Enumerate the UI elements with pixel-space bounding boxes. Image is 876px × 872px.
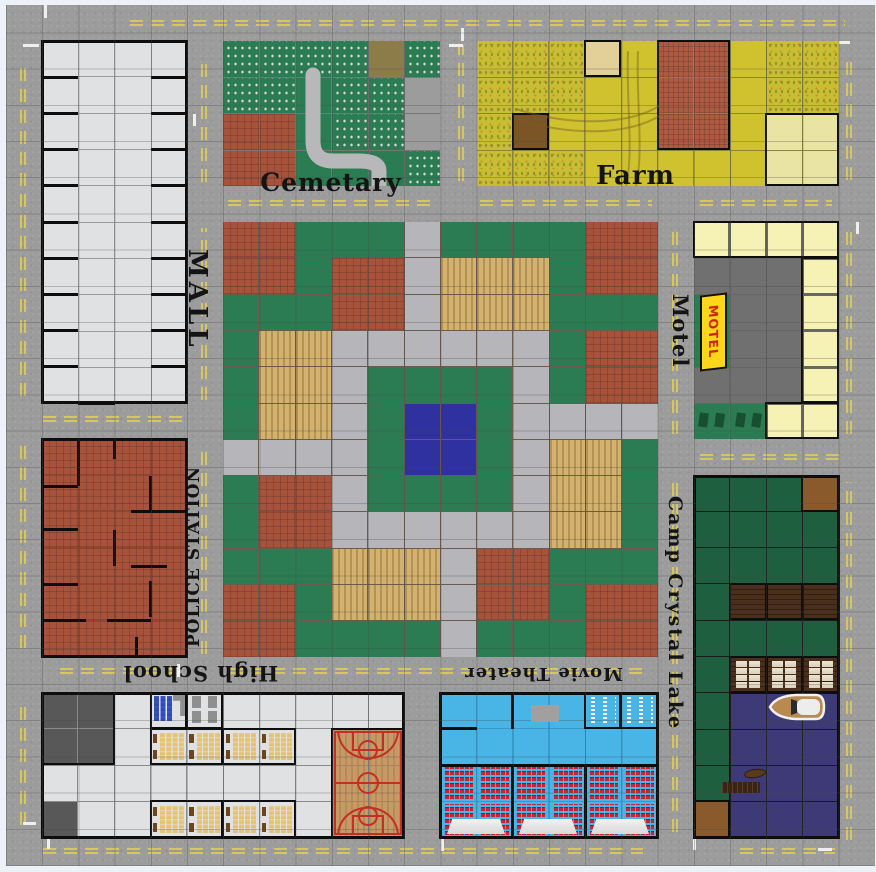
classroom-tile[interactable] xyxy=(187,802,222,837)
classroom-tile[interactable] xyxy=(151,802,186,837)
cabin-tile[interactable] xyxy=(730,584,765,619)
grass-tile[interactable] xyxy=(477,404,512,439)
brick-floor-tile[interactable] xyxy=(42,585,77,620)
lake-water-tile[interactable] xyxy=(767,802,802,837)
floor-tile[interactable] xyxy=(152,41,187,76)
grass-tile[interactable] xyxy=(586,549,621,584)
lobby-floor-tile[interactable] xyxy=(440,729,475,764)
grass-tile[interactable] xyxy=(550,367,585,402)
brick-plaza-tile[interactable] xyxy=(223,222,258,257)
path-tile[interactable] xyxy=(405,222,440,257)
path-tile[interactable] xyxy=(296,440,331,475)
parking-lot-tile[interactable] xyxy=(767,331,802,366)
grass-tile[interactable] xyxy=(513,222,548,257)
forest-tile[interactable] xyxy=(767,476,802,511)
path-tile[interactable] xyxy=(622,404,657,439)
floor-tile[interactable] xyxy=(79,295,114,330)
grass-tile[interactable] xyxy=(477,476,512,511)
floor-tile[interactable] xyxy=(79,186,114,221)
brick-plaza-tile[interactable] xyxy=(586,585,621,620)
parking-lot-tile[interactable] xyxy=(730,368,765,403)
garden-plot-tile[interactable] xyxy=(368,549,403,584)
dark-room-tile[interactable] xyxy=(42,693,77,728)
grass-tile[interactable] xyxy=(550,331,585,366)
brick-plaza-tile[interactable] xyxy=(622,621,657,656)
brick-floor-tile[interactable] xyxy=(42,548,77,583)
lobby-floor-tile[interactable] xyxy=(622,729,657,764)
concession-stand-tile[interactable] xyxy=(586,693,621,728)
parking-lot-tile[interactable] xyxy=(730,295,765,330)
path-tile[interactable] xyxy=(513,331,548,366)
brick-plaza-tile[interactable] xyxy=(259,476,294,511)
brick-plaza-tile[interactable] xyxy=(586,367,621,402)
forest-tile[interactable] xyxy=(694,584,729,619)
classroom-tile[interactable] xyxy=(224,802,259,837)
grass-tile[interactable] xyxy=(332,222,367,257)
motel-room-tile[interactable] xyxy=(803,259,838,294)
floor-tile[interactable] xyxy=(152,368,187,403)
brick-floor-tile[interactable] xyxy=(115,476,150,511)
path-tile[interactable] xyxy=(441,549,476,584)
parking-lot-tile[interactable] xyxy=(694,259,729,294)
theater-seats-tile[interactable] xyxy=(477,766,512,801)
floor-tile[interactable] xyxy=(42,766,77,801)
floor-tile[interactable] xyxy=(42,223,77,258)
path-tile[interactable] xyxy=(441,512,476,547)
garden-plot-tile[interactable] xyxy=(259,331,294,366)
grass-tile[interactable] xyxy=(441,222,476,257)
grass-tile[interactable] xyxy=(477,222,512,257)
motel-room-tile[interactable] xyxy=(730,222,765,257)
path-tile[interactable] xyxy=(405,512,440,547)
theater-seats-tile[interactable] xyxy=(586,766,621,801)
brick-plaza-tile[interactable] xyxy=(586,222,621,257)
brick-floor-tile[interactable] xyxy=(79,476,114,511)
restroom-tile[interactable] xyxy=(187,693,222,728)
garden-plot-tile[interactable] xyxy=(586,440,621,475)
path-tile[interactable] xyxy=(513,404,548,439)
floor-tile[interactable] xyxy=(115,368,150,403)
lobby-floor-tile[interactable] xyxy=(586,729,621,764)
floor-tile[interactable] xyxy=(79,150,114,185)
floor-tile[interactable] xyxy=(296,729,331,764)
floor-tile[interactable] xyxy=(79,41,114,76)
brick-floor-tile[interactable] xyxy=(152,512,187,547)
forest-tile[interactable] xyxy=(767,621,802,656)
garden-plot-tile[interactable] xyxy=(586,476,621,511)
bunk-cabin-tile[interactable] xyxy=(803,657,838,692)
garden-plot-tile[interactable] xyxy=(550,512,585,547)
grass-tile[interactable] xyxy=(223,512,258,547)
grass-tile[interactable] xyxy=(223,331,258,366)
motel-room-tile[interactable] xyxy=(767,404,802,439)
grass-tile[interactable] xyxy=(368,367,403,402)
path-tile[interactable] xyxy=(259,440,294,475)
parking-lot-tile[interactable] xyxy=(767,259,802,294)
dark-room-tile[interactable] xyxy=(42,802,77,837)
brick-floor-tile[interactable] xyxy=(79,548,114,583)
floor-tile[interactable] xyxy=(115,223,150,258)
path-tile[interactable] xyxy=(441,621,476,656)
grass-tile[interactable] xyxy=(550,585,585,620)
floor-tile[interactable] xyxy=(79,368,114,403)
forest-tile[interactable] xyxy=(694,693,729,728)
floor-tile[interactable] xyxy=(42,41,77,76)
lake-water-tile[interactable] xyxy=(730,802,765,837)
garden-plot-tile[interactable] xyxy=(296,367,331,402)
motel-room-tile[interactable] xyxy=(803,368,838,403)
theater-seats-tile[interactable] xyxy=(513,766,548,801)
parked-cars-lawn-tile[interactable] xyxy=(730,404,765,439)
brick-plaza-tile[interactable] xyxy=(477,585,512,620)
bunk-cabin-tile[interactable] xyxy=(767,657,802,692)
grass-tile[interactable] xyxy=(368,621,403,656)
camp-ground-tile[interactable] xyxy=(694,802,729,837)
floor-tile[interactable] xyxy=(115,259,150,294)
grass-tile[interactable] xyxy=(405,367,440,402)
classroom-tile[interactable] xyxy=(260,802,295,837)
floor-tile[interactable] xyxy=(78,766,113,801)
forest-tile[interactable] xyxy=(694,512,729,547)
brick-floor-tile[interactable] xyxy=(42,439,77,474)
path-tile[interactable] xyxy=(405,295,440,330)
floor-tile[interactable] xyxy=(42,295,77,330)
dark-room-tile[interactable] xyxy=(78,693,113,728)
grass-tile[interactable] xyxy=(223,367,258,402)
parking-lot-tile[interactable] xyxy=(767,295,802,330)
brick-plaza-tile[interactable] xyxy=(223,585,258,620)
floor-tile[interactable] xyxy=(78,802,113,837)
floor-tile[interactable] xyxy=(152,186,187,221)
forest-tile[interactable] xyxy=(803,621,838,656)
grass-tile[interactable] xyxy=(223,476,258,511)
grass-tile[interactable] xyxy=(296,222,331,257)
theater-seats-tile[interactable] xyxy=(622,766,657,801)
lobby-floor-tile[interactable] xyxy=(477,693,512,728)
brick-floor-tile[interactable] xyxy=(79,621,114,656)
grass-tile[interactable] xyxy=(259,549,294,584)
grass-tile[interactable] xyxy=(622,549,657,584)
brick-plaza-tile[interactable] xyxy=(586,621,621,656)
lake-water-tile[interactable] xyxy=(730,730,765,765)
dark-room-tile[interactable] xyxy=(78,729,113,764)
pool-tile[interactable] xyxy=(441,404,476,439)
grass-tile[interactable] xyxy=(441,476,476,511)
concession-stand-tile[interactable] xyxy=(622,693,657,728)
lobby-floor-tile[interactable] xyxy=(440,693,475,728)
path-tile[interactable] xyxy=(332,476,367,511)
path-tile[interactable] xyxy=(332,512,367,547)
floor-tile[interactable] xyxy=(187,766,222,801)
brick-plaza-tile[interactable] xyxy=(296,476,331,511)
floor-tile[interactable] xyxy=(79,114,114,149)
floor-tile[interactable] xyxy=(42,186,77,221)
forest-tile[interactable] xyxy=(730,548,765,583)
garden-plot-tile[interactable] xyxy=(513,295,548,330)
grass-tile[interactable] xyxy=(223,549,258,584)
path-tile[interactable] xyxy=(586,404,621,439)
grass-tile[interactable] xyxy=(622,440,657,475)
floor-tile[interactable] xyxy=(115,41,150,76)
grass-tile[interactable] xyxy=(550,621,585,656)
parking-lot-tile[interactable] xyxy=(730,259,765,294)
brick-plaza-tile[interactable] xyxy=(368,258,403,293)
lake-water-tile[interactable] xyxy=(803,766,838,801)
grass-tile[interactable] xyxy=(550,222,585,257)
classroom-tile[interactable] xyxy=(151,729,186,764)
lake-water-tile[interactable] xyxy=(803,802,838,837)
path-tile[interactable] xyxy=(441,585,476,620)
classroom-tile[interactable] xyxy=(187,729,222,764)
brick-plaza-tile[interactable] xyxy=(259,585,294,620)
brick-floor-tile[interactable] xyxy=(152,439,187,474)
path-tile[interactable] xyxy=(332,367,367,402)
forest-tile[interactable] xyxy=(694,730,729,765)
floor-tile[interactable] xyxy=(42,114,77,149)
grass-tile[interactable] xyxy=(477,621,512,656)
brick-plaza-tile[interactable] xyxy=(622,367,657,402)
grass-tile[interactable] xyxy=(622,476,657,511)
brick-plaza-tile[interactable] xyxy=(368,295,403,330)
pool-tile[interactable] xyxy=(405,440,440,475)
parking-lot-tile[interactable] xyxy=(730,331,765,366)
grass-tile[interactable] xyxy=(477,440,512,475)
floor-tile[interactable] xyxy=(296,693,331,728)
brick-floor-tile[interactable] xyxy=(42,476,77,511)
brick-plaza-tile[interactable] xyxy=(259,222,294,257)
path-tile[interactable] xyxy=(332,440,367,475)
grass-tile[interactable] xyxy=(550,295,585,330)
grass-tile[interactable] xyxy=(405,621,440,656)
grass-tile[interactable] xyxy=(368,440,403,475)
floor-tile[interactable] xyxy=(115,186,150,221)
grass-tile[interactable] xyxy=(368,404,403,439)
brick-plaza-tile[interactable] xyxy=(622,222,657,257)
garden-plot-tile[interactable] xyxy=(296,331,331,366)
floor-tile[interactable] xyxy=(224,693,259,728)
garden-plot-tile[interactable] xyxy=(477,258,512,293)
floor-tile[interactable] xyxy=(79,77,114,112)
forest-tile[interactable] xyxy=(767,512,802,547)
garden-plot-tile[interactable] xyxy=(477,295,512,330)
brick-plaza-tile[interactable] xyxy=(259,258,294,293)
garden-plot-tile[interactable] xyxy=(586,512,621,547)
floor-tile[interactable] xyxy=(115,729,150,764)
path-tile[interactable] xyxy=(513,512,548,547)
parking-lot-tile[interactable] xyxy=(694,368,729,403)
brick-plaza-tile[interactable] xyxy=(586,258,621,293)
floor-tile[interactable] xyxy=(260,766,295,801)
pool-tile[interactable] xyxy=(405,404,440,439)
motel-room-tile[interactable] xyxy=(803,331,838,366)
path-tile[interactable] xyxy=(513,440,548,475)
grass-tile[interactable] xyxy=(622,295,657,330)
brick-plaza-tile[interactable] xyxy=(622,585,657,620)
path-tile[interactable] xyxy=(550,404,585,439)
grass-tile[interactable] xyxy=(296,258,331,293)
floor-tile[interactable] xyxy=(115,295,150,330)
garden-plot-tile[interactable] xyxy=(441,258,476,293)
brick-floor-tile[interactable] xyxy=(115,585,150,620)
path-tile[interactable] xyxy=(223,440,258,475)
floor-tile[interactable] xyxy=(115,802,150,837)
garden-plot-tile[interactable] xyxy=(550,440,585,475)
forest-tile[interactable] xyxy=(730,476,765,511)
floor-tile[interactable] xyxy=(42,332,77,367)
cabin-floor-tile[interactable] xyxy=(803,476,838,511)
floor-tile[interactable] xyxy=(260,693,295,728)
garden-plot-tile[interactable] xyxy=(332,585,367,620)
brick-floor-tile[interactable] xyxy=(42,621,77,656)
forest-tile[interactable] xyxy=(694,548,729,583)
brick-floor-tile[interactable] xyxy=(115,621,150,656)
garden-plot-tile[interactable] xyxy=(368,585,403,620)
floor-tile[interactable] xyxy=(79,332,114,367)
grass-tile[interactable] xyxy=(296,585,331,620)
brick-floor-tile[interactable] xyxy=(79,512,114,547)
grass-tile[interactable] xyxy=(513,621,548,656)
forest-tile[interactable] xyxy=(803,548,838,583)
brick-floor-tile[interactable] xyxy=(115,512,150,547)
theater-seats-tile[interactable] xyxy=(440,766,475,801)
floor-tile[interactable] xyxy=(152,150,187,185)
floor-tile[interactable] xyxy=(42,368,77,403)
grass-tile[interactable] xyxy=(441,367,476,402)
brick-plaza-tile[interactable] xyxy=(259,512,294,547)
forest-tile[interactable] xyxy=(694,476,729,511)
theater-seats-tile[interactable] xyxy=(549,766,584,801)
grass-tile[interactable] xyxy=(223,295,258,330)
floor-tile[interactable] xyxy=(115,77,150,112)
brick-plaza-tile[interactable] xyxy=(332,295,367,330)
forest-tile[interactable] xyxy=(803,512,838,547)
brick-floor-tile[interactable] xyxy=(152,585,187,620)
dark-room-tile[interactable] xyxy=(42,729,77,764)
garden-plot-tile[interactable] xyxy=(259,367,294,402)
floor-tile[interactable] xyxy=(369,693,404,728)
forest-tile[interactable] xyxy=(767,548,802,583)
path-tile[interactable] xyxy=(513,476,548,511)
brick-floor-tile[interactable] xyxy=(79,439,114,474)
floor-tile[interactable] xyxy=(115,766,150,801)
path-tile[interactable] xyxy=(405,331,440,366)
grass-tile[interactable] xyxy=(622,512,657,547)
motel-room-tile[interactable] xyxy=(767,222,802,257)
brick-floor-tile[interactable] xyxy=(79,585,114,620)
motel-room-tile[interactable] xyxy=(803,404,838,439)
lobby-floor-tile[interactable] xyxy=(513,729,548,764)
motel-room-tile[interactable] xyxy=(694,222,729,257)
floor-tile[interactable] xyxy=(115,150,150,185)
classroom-tile[interactable] xyxy=(260,729,295,764)
floor-tile[interactable] xyxy=(42,150,77,185)
floor-tile[interactable] xyxy=(151,766,186,801)
garden-plot-tile[interactable] xyxy=(332,549,367,584)
parked-cars-lawn-tile[interactable] xyxy=(694,404,729,439)
floor-tile[interactable] xyxy=(296,802,331,837)
floor-tile[interactable] xyxy=(152,114,187,149)
lake-water-tile[interactable] xyxy=(803,730,838,765)
path-tile[interactable] xyxy=(441,331,476,366)
floor-tile[interactable] xyxy=(115,693,150,728)
garden-plot-tile[interactable] xyxy=(405,585,440,620)
grass-tile[interactable] xyxy=(368,222,403,257)
brick-floor-tile[interactable] xyxy=(152,476,187,511)
lake-water-tile[interactable] xyxy=(730,693,765,728)
floor-tile[interactable] xyxy=(79,259,114,294)
forest-tile[interactable] xyxy=(730,621,765,656)
garden-plot-tile[interactable] xyxy=(550,476,585,511)
grass-tile[interactable] xyxy=(550,258,585,293)
motel-room-tile[interactable] xyxy=(803,222,838,257)
floor-tile[interactable] xyxy=(296,766,331,801)
grass-tile[interactable] xyxy=(368,476,403,511)
forest-tile[interactable] xyxy=(694,621,729,656)
brick-plaza-tile[interactable] xyxy=(223,258,258,293)
forest-tile[interactable] xyxy=(730,512,765,547)
floor-tile[interactable] xyxy=(333,693,368,728)
floor-tile[interactable] xyxy=(152,77,187,112)
brick-floor-tile[interactable] xyxy=(152,621,187,656)
bunk-cabin-tile[interactable] xyxy=(730,657,765,692)
brick-plaza-tile[interactable] xyxy=(513,585,548,620)
path-tile[interactable] xyxy=(477,512,512,547)
path-tile[interactable] xyxy=(368,512,403,547)
brick-plaza-tile[interactable] xyxy=(332,258,367,293)
floor-tile[interactable] xyxy=(115,114,150,149)
brick-plaza-tile[interactable] xyxy=(296,512,331,547)
floor-tile[interactable] xyxy=(42,259,77,294)
garden-plot-tile[interactable] xyxy=(405,549,440,584)
lobby-floor-tile[interactable] xyxy=(477,729,512,764)
brick-plaza-tile[interactable] xyxy=(622,258,657,293)
floor-tile[interactable] xyxy=(79,223,114,258)
path-tile[interactable] xyxy=(368,331,403,366)
brick-plaza-tile[interactable] xyxy=(513,549,548,584)
brick-floor-tile[interactable] xyxy=(115,439,150,474)
grass-tile[interactable] xyxy=(296,549,331,584)
floor-tile[interactable] xyxy=(115,332,150,367)
brick-plaza-tile[interactable] xyxy=(622,331,657,366)
cabin-tile[interactable] xyxy=(767,584,802,619)
grass-tile[interactable] xyxy=(405,476,440,511)
locker-room-tile[interactable] xyxy=(151,693,186,728)
floor-tile[interactable] xyxy=(224,766,259,801)
parking-lot-tile[interactable] xyxy=(767,368,802,403)
path-tile[interactable] xyxy=(513,367,548,402)
grass-tile[interactable] xyxy=(223,404,258,439)
lake-water-tile[interactable] xyxy=(767,766,802,801)
grass-tile[interactable] xyxy=(259,295,294,330)
garden-plot-tile[interactable] xyxy=(296,404,331,439)
floor-tile[interactable] xyxy=(42,77,77,112)
garden-plot-tile[interactable] xyxy=(259,404,294,439)
path-tile[interactable] xyxy=(405,258,440,293)
classroom-tile[interactable] xyxy=(224,729,259,764)
brick-plaza-tile[interactable] xyxy=(259,621,294,656)
cabin-tile[interactable] xyxy=(803,584,838,619)
grass-tile[interactable] xyxy=(586,295,621,330)
grass-tile[interactable] xyxy=(332,621,367,656)
garden-plot-tile[interactable] xyxy=(441,295,476,330)
grass-tile[interactable] xyxy=(550,549,585,584)
grass-tile[interactable] xyxy=(477,367,512,402)
lake-water-tile[interactable] xyxy=(767,730,802,765)
path-tile[interactable] xyxy=(477,331,512,366)
lobby-floor-tile[interactable] xyxy=(549,729,584,764)
grass-tile[interactable] xyxy=(296,295,331,330)
motel-room-tile[interactable] xyxy=(803,295,838,330)
